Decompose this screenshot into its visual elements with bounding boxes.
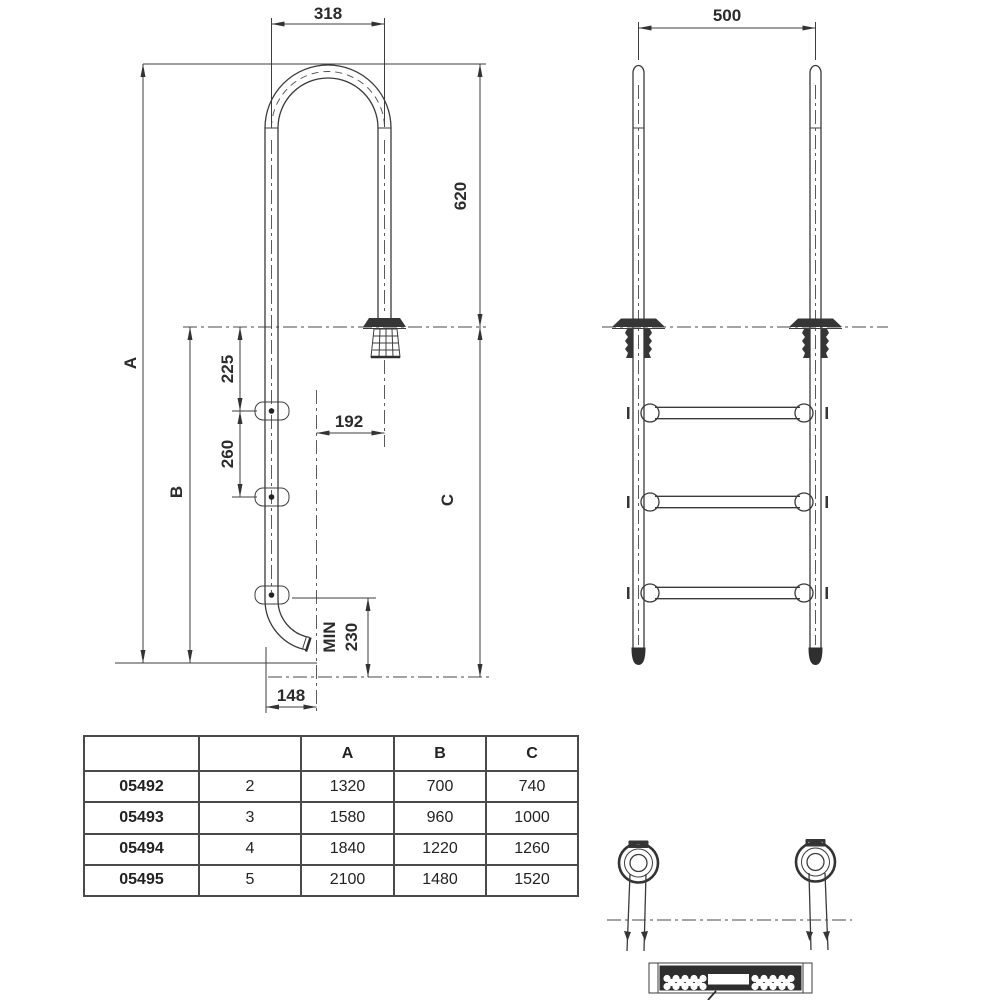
b-cell: 960 <box>394 802 486 833</box>
header-model <box>84 736 199 771</box>
steps-cell: 4 <box>199 834 301 865</box>
steps-cell: 2 <box>199 771 301 802</box>
deck-anchor-side <box>363 318 406 357</box>
step-tread <box>649 963 812 1000</box>
dim-label-620: 620 <box>451 182 470 210</box>
dim-label-225: 225 <box>218 355 237 383</box>
ladder-technical-drawing: 318 620 A B C 225 260 192 MIN 230 148 50… <box>0 0 1000 1000</box>
header-steps <box>199 736 301 771</box>
table-row: 05495 5 2100 1480 1520 <box>84 865 578 896</box>
dim-label-192: 192 <box>335 412 363 431</box>
dim-label-500: 500 <box>713 6 741 25</box>
flange-top-left <box>619 844 658 883</box>
header-A: A <box>301 736 394 771</box>
a-cell: 2100 <box>301 865 394 896</box>
plan-view <box>607 839 852 1000</box>
header-B: B <box>394 736 486 771</box>
dim-label-318: 318 <box>314 4 342 23</box>
a-cell: 1580 <box>301 802 394 833</box>
dim-label-A: A <box>121 357 140 369</box>
model-cell: 05492 <box>84 771 199 802</box>
a-cell: 1840 <box>301 834 394 865</box>
rung-side-1 <box>255 402 289 420</box>
rail-end-cap-left <box>632 648 645 665</box>
dim-label-min: MIN <box>320 621 339 652</box>
rail-end-cap-right <box>809 648 822 665</box>
header-C: C <box>486 736 578 771</box>
steps-cell: 5 <box>199 865 301 896</box>
b-cell: 1480 <box>394 865 486 896</box>
bottom-bend-inner <box>278 600 309 637</box>
dim-label-C: C <box>438 494 457 506</box>
dim-label-260: 260 <box>218 440 237 468</box>
c-cell: 1260 <box>486 834 578 865</box>
rung-front-3 <box>627 584 828 602</box>
b-cell: 700 <box>394 771 486 802</box>
model-cell: 05495 <box>84 865 199 896</box>
c-cell: 1000 <box>486 802 578 833</box>
rung-front-2 <box>627 493 828 511</box>
rung-side-3 <box>255 586 289 604</box>
bottom-bend-outer <box>265 600 307 650</box>
rung-front-1 <box>627 404 828 422</box>
c-cell: 1520 <box>486 865 578 896</box>
b-cell: 1220 <box>394 834 486 865</box>
model-cell: 05494 <box>84 834 199 865</box>
table-row: 05493 3 1580 960 1000 <box>84 802 578 833</box>
handrail-bend-inner <box>278 78 378 128</box>
dim-label-148: 148 <box>277 686 305 705</box>
table-header-row: A B C <box>84 736 578 771</box>
dim-label-B: B <box>167 486 186 498</box>
table-row: 05494 4 1840 1220 1260 <box>84 834 578 865</box>
c-cell: 740 <box>486 771 578 802</box>
rung-side-2 <box>255 488 289 506</box>
front-view: 500 <box>602 6 888 665</box>
handrail-bend-outer <box>265 65 391 128</box>
side-view: 318 620 A B C 225 260 192 MIN 230 148 <box>115 4 490 713</box>
table-row: 05492 2 1320 700 740 <box>84 771 578 802</box>
dim-label-230: 230 <box>342 623 361 651</box>
model-cell: 05493 <box>84 802 199 833</box>
steps-cell: 3 <box>199 802 301 833</box>
flange-top-right <box>796 843 835 882</box>
a-cell: 1320 <box>301 771 394 802</box>
spec-table: A B C 05492 2 1320 700 740 05493 3 1580 … <box>83 735 579 897</box>
